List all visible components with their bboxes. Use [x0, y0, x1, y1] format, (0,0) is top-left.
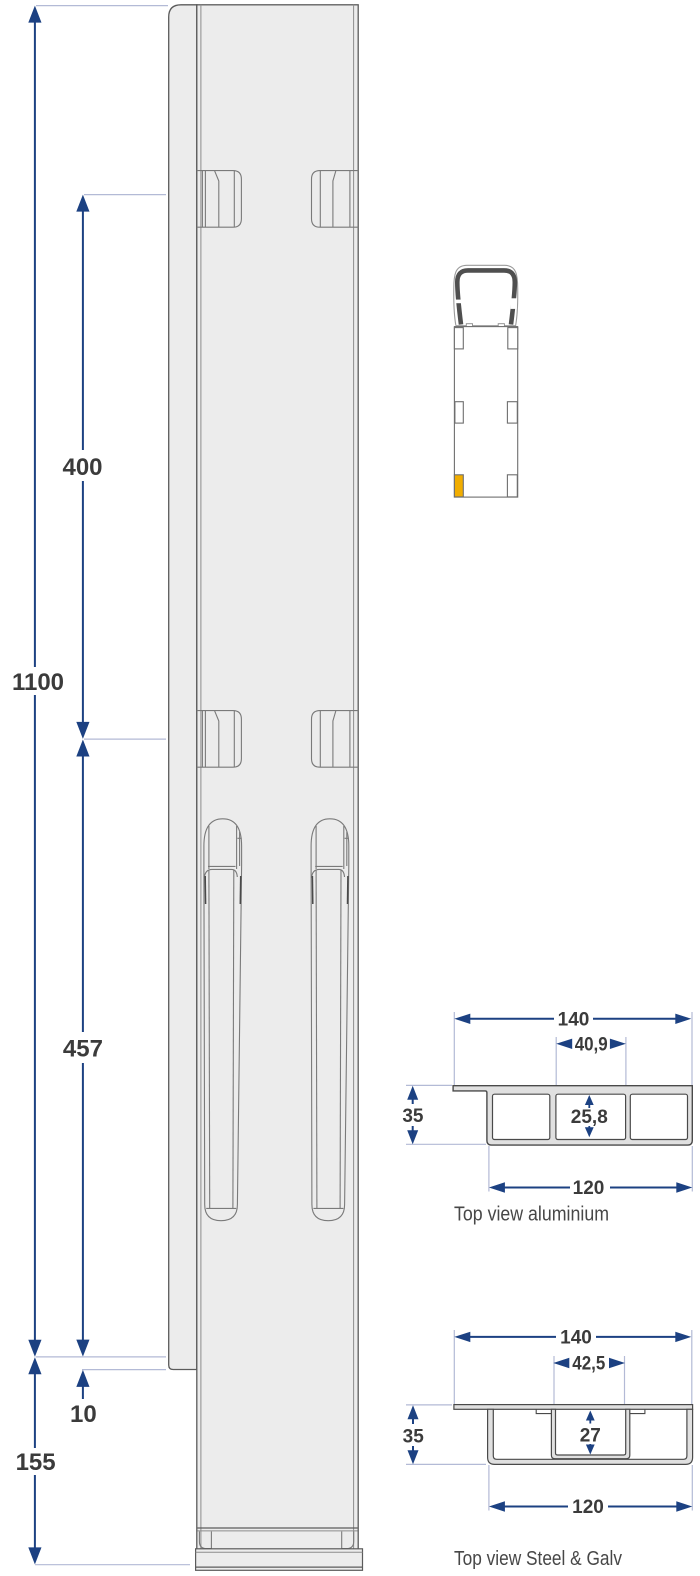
svg-text:1100: 1100	[12, 669, 64, 696]
svg-text:Top view aluminium: Top view aluminium	[454, 1204, 609, 1226]
svg-text:155: 155	[16, 1449, 56, 1476]
svg-text:27: 27	[580, 1425, 601, 1446]
svg-text:140: 140	[558, 1009, 590, 1030]
svg-text:35: 35	[403, 1427, 425, 1448]
svg-text:400: 400	[62, 454, 102, 481]
svg-text:140: 140	[560, 1328, 592, 1349]
svg-text:40,9: 40,9	[575, 1034, 608, 1055]
svg-text:35: 35	[402, 1106, 424, 1127]
svg-text:25,8: 25,8	[571, 1107, 608, 1128]
svg-text:10: 10	[70, 1401, 97, 1428]
svg-text:120: 120	[573, 1178, 605, 1199]
svg-text:120: 120	[572, 1497, 604, 1518]
svg-text:457: 457	[63, 1036, 103, 1063]
svg-text:Top view Steel & Galv: Top view Steel & Galv	[454, 1548, 622, 1570]
svg-text:42,5: 42,5	[572, 1354, 605, 1375]
